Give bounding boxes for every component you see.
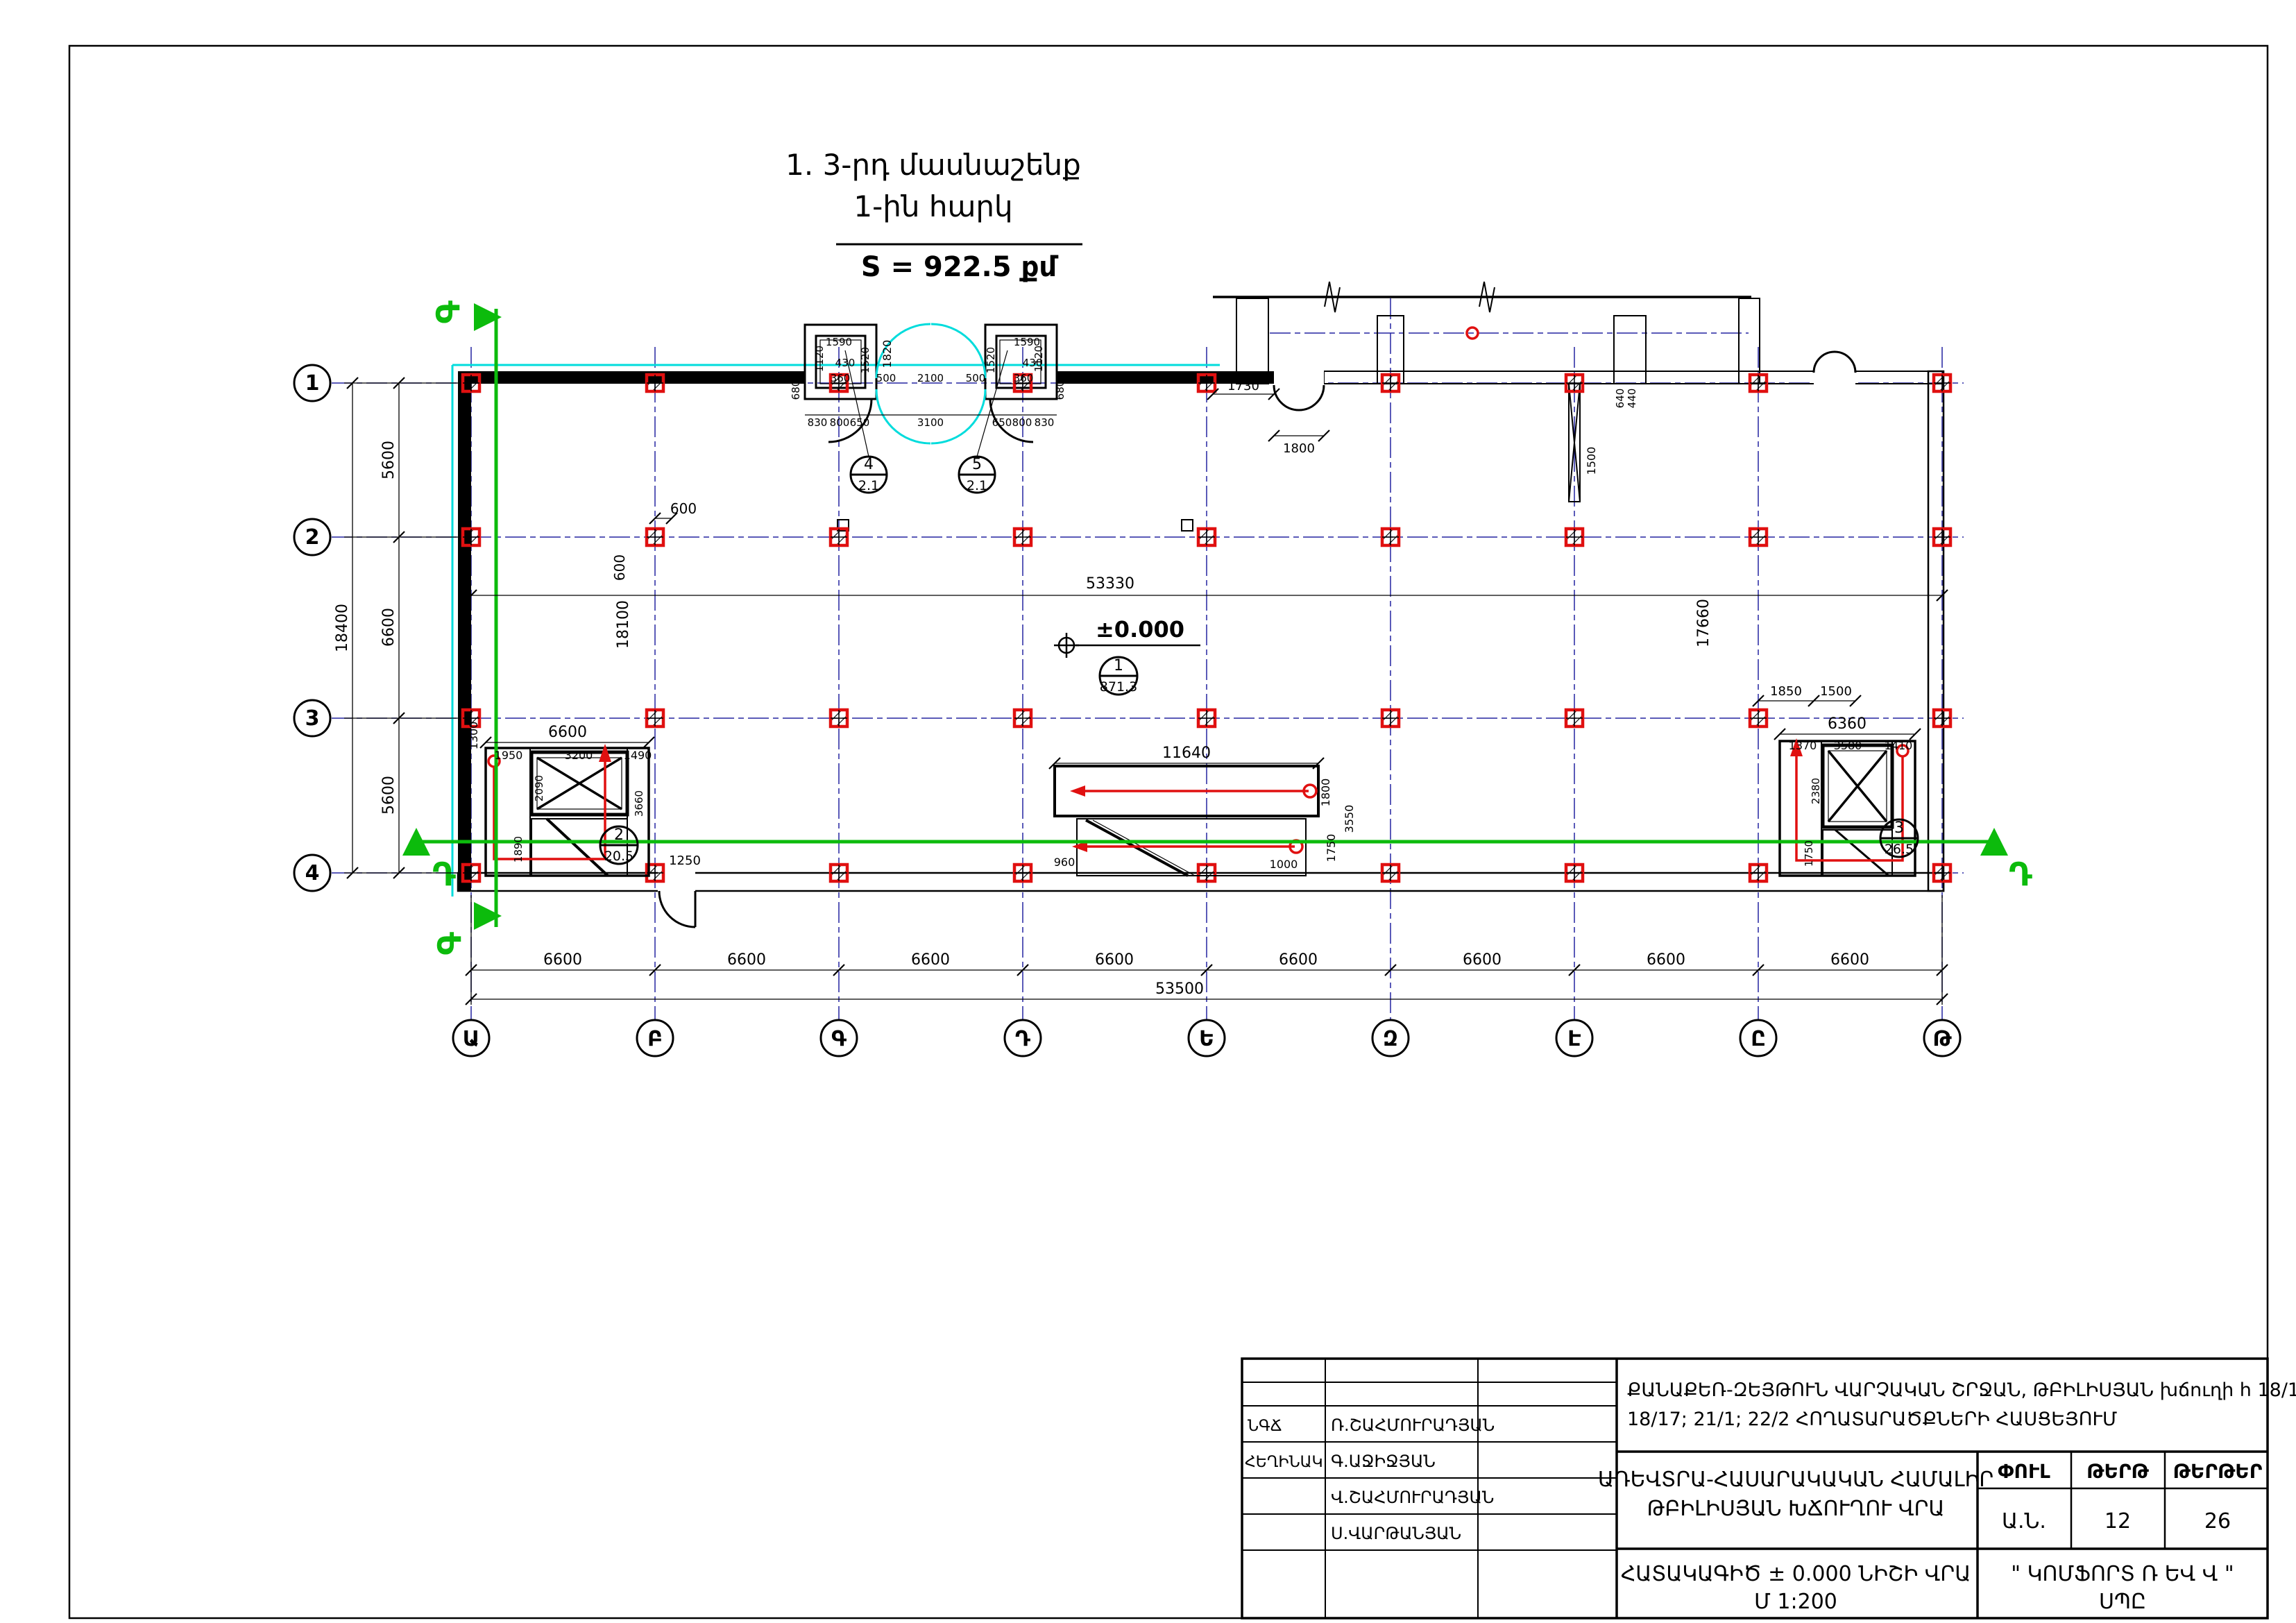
section-lines: Գ Գ Դ Դ: [402, 300, 2032, 955]
axis-row-3: 3: [305, 706, 320, 731]
dim-bot-4: 6600: [1095, 951, 1134, 969]
center-stair-rail: [1086, 820, 1188, 876]
sheets-label: ԹԵՐԹԵՐ: [2173, 1460, 2263, 1483]
sheet-title: ՀԱՏԱԿԱԳԻԾ ± 0.000 ՆԻՇԻ ՎՐԱ: [1621, 1562, 1971, 1586]
right-wall: [1928, 371, 1944, 891]
dim-left-1: 5600: [380, 441, 398, 479]
axis-col-5: Ե: [1199, 1027, 1214, 1051]
svg-text:1890: 1890: [512, 836, 525, 863]
top-wall-left: [458, 371, 805, 384]
axis-row-2: 2: [305, 525, 320, 550]
svg-text:960: 960: [1054, 856, 1075, 869]
name-2: Գ.ԱՋԻՋՅԱՆ: [1331, 1452, 1436, 1471]
svg-text:1: 1: [1114, 657, 1123, 674]
axis-row-4: 4: [305, 861, 320, 885]
svg-text:680: 680: [790, 380, 802, 400]
dim-inner-left: 18100: [615, 600, 632, 649]
axis-col-8: Ը: [1751, 1027, 1766, 1051]
dim-1800: 1800: [1283, 441, 1315, 456]
dim-bot-2: 6600: [727, 951, 766, 969]
svg-text:500: 500: [966, 372, 986, 384]
stage-label: ՓՈՒԼ: [1998, 1460, 2050, 1483]
drawing-title: 1. 3-րդ մասնաշենք 1-ին հարկ S = 922.5 քմ: [785, 148, 1082, 283]
axis-col-1: Ա: [463, 1027, 479, 1051]
svg-text:1950: 1950: [495, 749, 523, 762]
svg-text:3200: 3200: [565, 749, 593, 762]
svg-text:680: 680: [1054, 380, 1066, 400]
svg-text:6360: 6360: [1828, 715, 1866, 733]
svg-text:2090: 2090: [533, 775, 545, 801]
axis-col-4: Դ: [1015, 1027, 1030, 1051]
svg-text:2380: 2380: [1810, 778, 1822, 804]
dim-left-2: 6600: [380, 608, 398, 647]
door-opening-1800: [1274, 370, 1324, 385]
sheets-total: 26: [2204, 1509, 2231, 1533]
svg-text:430: 430: [835, 357, 856, 369]
svg-text:6600: 6600: [548, 724, 587, 741]
svg-text:26.5: 26.5: [1885, 842, 1914, 857]
left-dimensions: 18400 5600 6600 5600: [334, 377, 458, 878]
axis-row-1: 1: [305, 371, 320, 396]
svg-text:11640: 11640: [1162, 745, 1211, 762]
svg-text:3580: 3580: [1834, 739, 1862, 752]
sheet-scale: Մ 1:200: [1754, 1590, 1837, 1614]
svg-text:1370: 1370: [1789, 739, 1817, 752]
center-stair-dimensions: 11640 1800 3550 1750 960 1000: [1049, 745, 1356, 871]
level-value: ±0.000: [1096, 616, 1184, 643]
axis-col-6: Զ: [1383, 1027, 1398, 1051]
sheet-label: ԹԵՐԹ: [2086, 1460, 2149, 1483]
drawing-sheet: 1. 3-րդ մասնաշենք 1-ին հարկ S = 922.5 քմ: [0, 0, 2296, 1623]
break-symbol-2: [1479, 282, 1495, 312]
dim-bottom-total: 53500: [1155, 980, 1204, 998]
svg-text:1250: 1250: [669, 853, 701, 868]
axis-grid: [332, 298, 1964, 1020]
section-label-h-left: Դ: [432, 856, 456, 893]
axis-col-7: Է: [1567, 1027, 1581, 1051]
pier-3: [1614, 316, 1646, 384]
name-4: Ս.ՎԱՐԹԱՆՅԱՆ: [1331, 1524, 1461, 1543]
dim-bot-5: 6600: [1279, 951, 1318, 969]
pier-1: [1236, 298, 1268, 384]
door-arc-1250: [659, 891, 695, 927]
role-2: ՀԵՂԻՆԱԿ: [1245, 1454, 1323, 1471]
svg-text:2100: 2100: [917, 372, 944, 384]
svg-text:1410: 1410: [1885, 739, 1913, 752]
section-label-v-top: Գ: [430, 300, 467, 324]
room-tag-2: 2 20.5: [600, 826, 638, 864]
svg-text:650: 650: [850, 416, 870, 429]
dim-640: 640: [1614, 389, 1626, 409]
svg-text:2.1: 2.1: [967, 478, 987, 493]
name-1: Ռ.ՇԱՀՄՈՒՐԱԴՅԱՆ: [1331, 1416, 1495, 1435]
left-stair-rail: [547, 819, 608, 876]
section-label-h-right: Դ: [2009, 856, 2032, 893]
dim-inner-top: 53330: [1086, 575, 1134, 593]
dim-col-v: 600: [611, 554, 628, 581]
room-tag-1: 1 871.3: [1100, 657, 1137, 695]
level-mark: ±0.000: [1054, 616, 1200, 658]
object-line2: ԹԲԻԼԻՍՅԱՆ ԽՃՈՒՂՈՒ ՎՐԱ: [1647, 1497, 1945, 1521]
svg-text:1120: 1120: [813, 346, 826, 372]
svg-text:1520: 1520: [985, 347, 997, 373]
company-name: " ԿՈՄՖՈՐՏ Ռ ԵՎ Վ ": [2011, 1562, 2234, 1586]
svg-text:1000: 1000: [1270, 858, 1298, 871]
door-arcs-1800: [1274, 385, 1324, 410]
door-arcs-1500: [1814, 352, 1855, 373]
svg-text:871.3: 871.3: [1100, 679, 1137, 695]
section-label-v-bottom: Գ: [431, 932, 468, 955]
svg-text:830: 830: [1035, 416, 1055, 429]
svg-text:800: 800: [1012, 416, 1032, 429]
title-line2: 1-ին հարկ: [853, 189, 1012, 223]
svg-text:1300: 1300: [467, 722, 480, 750]
project-line2: 18/17; 21/1; 22/2 ՀՈՂԱՏԱՐԱԾՔՆԵՐԻ ՀԱՍՑԵՅՈ…: [1627, 1409, 2117, 1430]
break-symbol-1: [1325, 282, 1340, 312]
left-stair-path: [494, 758, 605, 859]
svg-text:1850: 1850: [1770, 684, 1802, 699]
svg-text:360: 360: [1014, 372, 1034, 384]
right-stair-treads: [1780, 741, 1821, 876]
svg-text:3660: 3660: [633, 790, 645, 817]
svg-text:20.5: 20.5: [604, 849, 633, 864]
svg-text:1750: 1750: [1325, 834, 1338, 863]
dim-bot-3: 6600: [911, 951, 950, 969]
axis-col-3: Գ: [831, 1027, 847, 1051]
role-1: ՆԳՃ: [1248, 1418, 1282, 1435]
svg-text:1800: 1800: [1319, 779, 1332, 807]
svg-text:800: 800: [830, 416, 850, 429]
duct-box-2: [1182, 520, 1193, 531]
svg-text:1820: 1820: [881, 340, 894, 368]
dim-bot-1: 6600: [543, 951, 582, 969]
svg-text:2.1: 2.1: [858, 478, 879, 493]
stage-value: Ա.Ն.: [2002, 1509, 2046, 1533]
dim-1500-brace: 1500: [1585, 447, 1598, 475]
left-wall: [458, 371, 471, 891]
svg-text:830: 830: [808, 416, 828, 429]
dim-left-total: 18400: [334, 604, 351, 652]
project-line1: ՔԱՆԱՔԵՌ-ԶԵՅԹՈՒՆ ՎԱՐՉԱԿԱՆ ՇՐՋԱՆ, ԹԲԻԼԻՍՅԱ…: [1627, 1379, 2296, 1401]
svg-text:2: 2: [614, 826, 624, 844]
svg-text:1120: 1120: [1032, 346, 1045, 372]
svg-text:4: 4: [864, 456, 874, 473]
company-type: ՍՊԸ: [2099, 1590, 2146, 1614]
svg-text:1520: 1520: [859, 347, 871, 373]
axis-col-9: Թ: [1932, 1027, 1952, 1051]
title-line1: 1. 3-րդ մասնաշենք: [785, 148, 1081, 182]
title-block: ՔԱՆԱՔԵՌ-ԶԵՅԹՈՒՆ ՎԱՐՉԱԿԱՆ ՇՐՋԱՆ, ԹԲԻԼԻՍՅԱ…: [1242, 1359, 2296, 1618]
svg-text:5: 5: [972, 456, 982, 473]
door-opening-1500: [1814, 370, 1855, 385]
title-area: S = 922.5 քմ: [861, 251, 1059, 283]
room-tag-3: 3 26.5: [1880, 819, 1918, 857]
svg-text:3550: 3550: [1343, 805, 1356, 833]
dim-bot-6: 6600: [1463, 951, 1502, 969]
svg-text:1490: 1490: [624, 749, 652, 762]
dim-col-h: 600: [670, 500, 697, 517]
floor-plan-svg: 1. 3-րդ մասնաշենք 1-ին հարկ S = 922.5 քմ: [0, 0, 2296, 1623]
left-stair-dimensions: 6600 1950 3200 1490 1300 2090 3660 1890 …: [467, 722, 701, 868]
svg-text:650: 650: [992, 416, 1012, 429]
name-3: Վ.ՇԱՀՄՈՒՐԱԴՅԱՆ: [1331, 1488, 1494, 1507]
svg-text:1750: 1750: [1803, 840, 1815, 867]
entrance-dimensions: 830 800 650 3100 650 800 830 500 2100 50…: [790, 336, 1066, 429]
sheet-number: 12: [2104, 1509, 2131, 1533]
dim-bot-7: 6600: [1647, 951, 1685, 969]
dim-bot-8: 6600: [1830, 951, 1869, 969]
dim-left-3: 5600: [380, 776, 398, 815]
axis-col-2: Բ: [647, 1027, 663, 1051]
svg-text:1590: 1590: [826, 336, 852, 348]
object-line1: ԱՌԵՎՏՐԱ-ՀԱՍԱՐԱԿԱԿԱՆ ՀԱՄԱԼԻՐ: [1598, 1468, 1993, 1492]
svg-text:3: 3: [1894, 819, 1904, 837]
svg-text:3100: 3100: [917, 416, 944, 429]
right-stair-dimensions: 1850 1500 6360 1370 3580 1410 2380 1750: [1753, 684, 1921, 867]
dim-1730: 1730: [1227, 379, 1259, 393]
svg-text:500: 500: [876, 372, 896, 384]
dim-inner-right: 17660: [1695, 599, 1712, 647]
svg-text:360: 360: [831, 372, 851, 384]
svg-text:1500: 1500: [1820, 684, 1852, 699]
dim-440: 440: [1626, 389, 1638, 409]
